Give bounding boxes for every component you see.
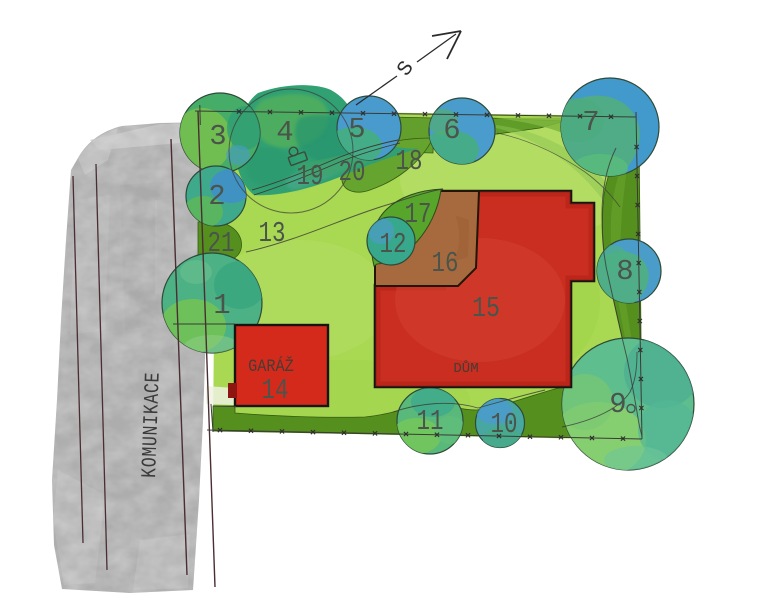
svg-text:14: 14: [262, 374, 289, 407]
svg-text:16: 16: [432, 247, 459, 280]
svg-text:18: 18: [396, 145, 423, 178]
svg-text:S: S: [394, 57, 420, 81]
svg-text:21: 21: [208, 227, 235, 260]
svg-text:2: 2: [208, 180, 225, 213]
svg-text:13: 13: [259, 217, 286, 250]
svg-text:15: 15: [472, 292, 500, 325]
svg-text:11: 11: [417, 405, 444, 438]
svg-text:19: 19: [297, 160, 324, 193]
svg-text:4: 4: [276, 116, 293, 149]
svg-text:20: 20: [339, 156, 366, 189]
svg-text:KOMUNIKACE: KOMUNIKACE: [137, 371, 165, 478]
svg-text:7: 7: [582, 106, 599, 139]
svg-text:5: 5: [348, 113, 365, 146]
svg-text:6: 6: [443, 114, 460, 147]
svg-text:9: 9: [609, 388, 626, 421]
svg-text:8: 8: [616, 255, 633, 288]
svg-text:10: 10: [491, 408, 518, 441]
svg-text:12: 12: [380, 228, 407, 261]
svg-text:1: 1: [213, 289, 230, 322]
svg-text:GARÁŽ: GARÁŽ: [248, 356, 294, 376]
svg-text:3: 3: [209, 120, 226, 153]
svg-text:17: 17: [405, 198, 432, 231]
svg-text:DŮM: DŮM: [453, 359, 478, 377]
